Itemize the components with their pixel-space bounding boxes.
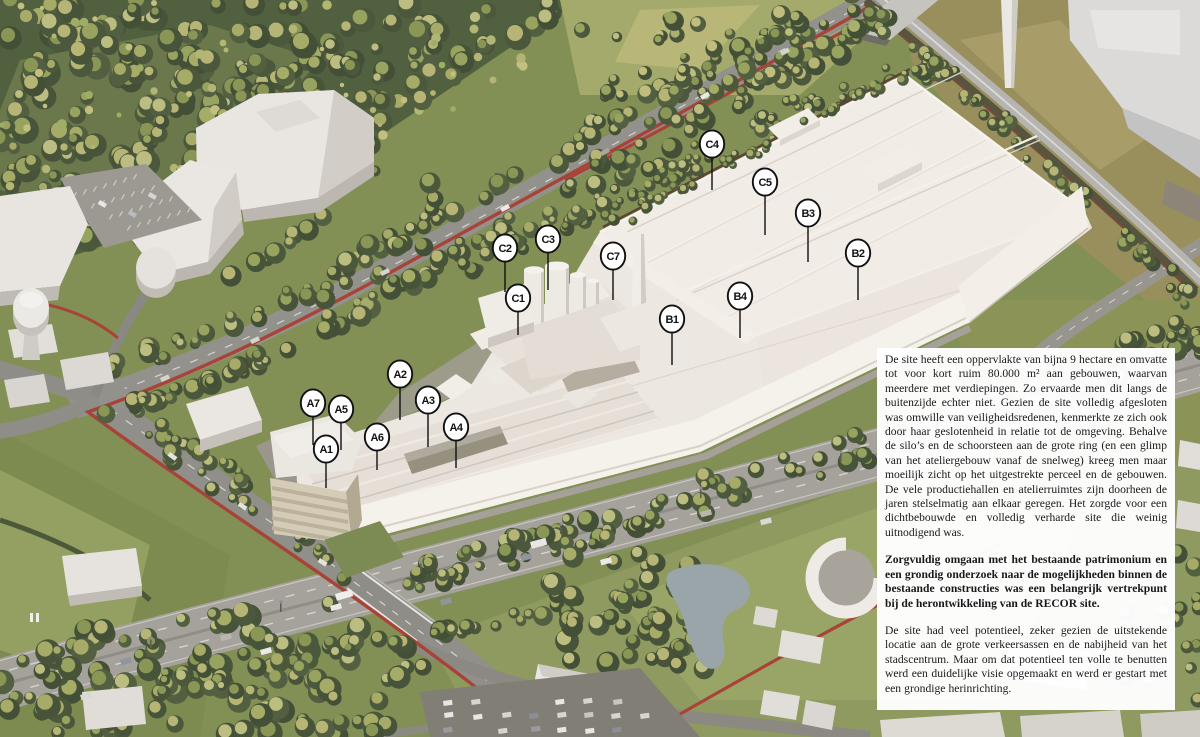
svg-text:A4: A4 <box>449 422 463 434</box>
svg-text:B4: B4 <box>733 291 747 303</box>
svg-text:A2: A2 <box>393 369 406 381</box>
svg-text:B3: B3 <box>801 208 814 220</box>
svg-text:C2: C2 <box>498 243 511 255</box>
svg-text:C7: C7 <box>606 251 619 263</box>
svg-text:B2: B2 <box>851 248 864 260</box>
svg-text:A6: A6 <box>370 432 383 444</box>
svg-text:B1: B1 <box>665 314 678 326</box>
svg-text:C5: C5 <box>758 177 771 189</box>
svg-text:A5: A5 <box>334 404 347 416</box>
svg-text:C4: C4 <box>705 139 719 151</box>
svg-text:C1: C1 <box>511 293 524 305</box>
svg-text:C3: C3 <box>541 234 554 246</box>
svg-text:A7: A7 <box>306 398 319 410</box>
svg-text:A3: A3 <box>421 395 434 407</box>
svg-text:A1: A1 <box>319 444 332 456</box>
